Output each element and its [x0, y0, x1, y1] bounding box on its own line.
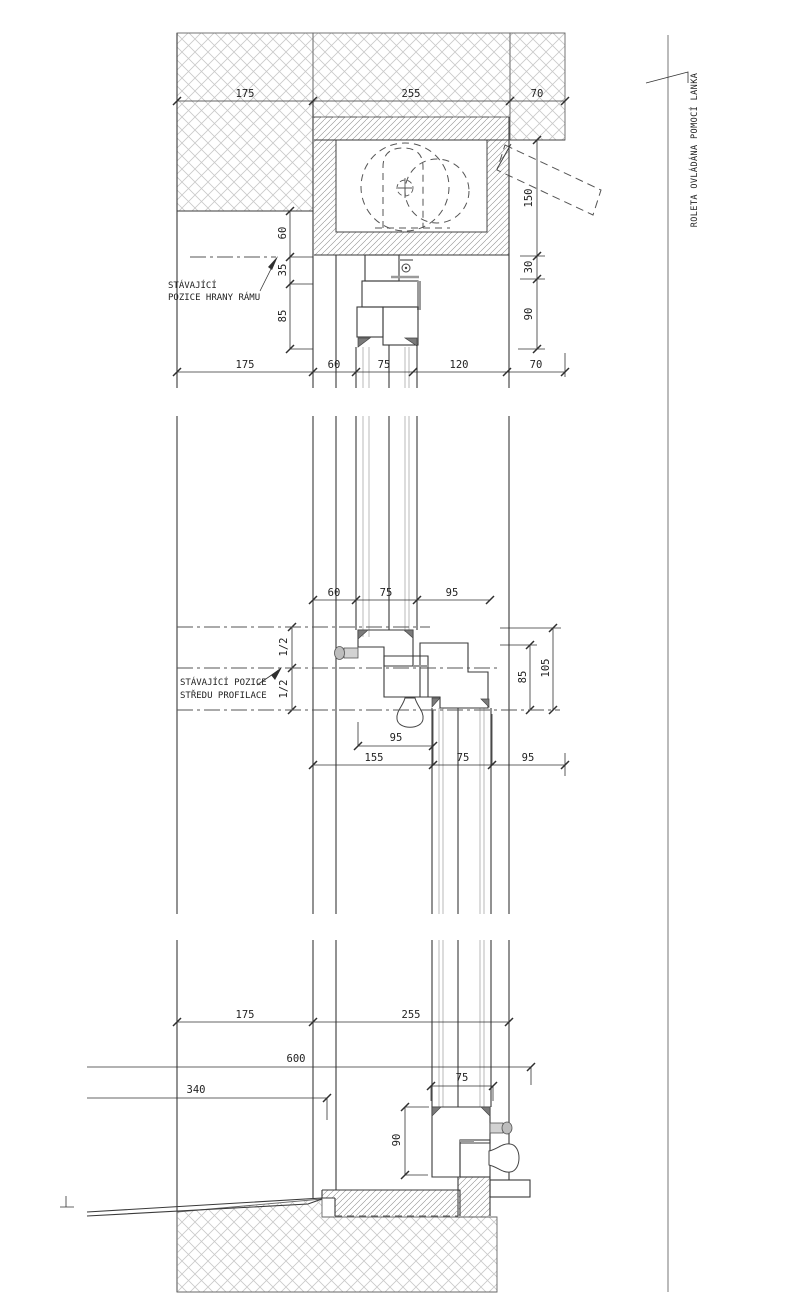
roller-flap-open: [497, 144, 601, 215]
dim-label: 35: [277, 264, 289, 277]
dim-label: 60: [277, 227, 289, 240]
window-detail-sheet: 175 255 70 175 60 75 120 70 60 35 85 150…: [0, 0, 800, 1303]
dim-label: 85: [277, 310, 289, 323]
dim-label: 70: [530, 359, 543, 371]
dim-label: 175: [236, 1009, 255, 1021]
cord-pulley-icon: [399, 260, 413, 272]
sill-profile: [60, 1107, 530, 1217]
transom-profile: [335, 630, 490, 727]
dim-label: 85: [517, 671, 529, 684]
espagnolette-knob-icon: [335, 647, 359, 660]
dim-label: 30: [523, 261, 535, 274]
dim-label: 120: [450, 359, 469, 371]
centerlines: [177, 257, 560, 710]
transom-note-line1: STÁVAJÍCÍ POZICE: [180, 676, 267, 688]
dim-label: 75: [378, 359, 391, 371]
dimension-lines: [87, 97, 569, 1179]
dim-label: 175: [236, 359, 255, 371]
dim-label: 255: [402, 88, 421, 100]
dim-label: 75: [380, 587, 393, 599]
dim-label: 75: [457, 752, 470, 764]
window-detail-drawing: 175 255 70 175 60 75 120 70 60 35 85 150…: [0, 0, 800, 1303]
espagnolette-knob-icon: [490, 1122, 512, 1134]
dim-label: 1/2: [278, 680, 290, 699]
dim-label: 95: [522, 752, 535, 764]
dim-label: 75: [456, 1072, 469, 1084]
transom-note-line2: STŘEDU PROFILACE: [180, 689, 267, 701]
dim-label: 95: [446, 587, 459, 599]
roleta-note: ROLETA OVLÁDÁNA POMOCÍ LANKA: [688, 73, 700, 228]
roller-blind-box: [314, 117, 509, 255]
dim-label: 70: [531, 88, 544, 100]
dim-label: 175: [236, 88, 255, 100]
dim-label: 150: [523, 189, 535, 208]
head-note-line1: STÁVAJÍCÍ: [168, 279, 217, 291]
section-reference-line: [646, 35, 688, 1292]
head-note-line2: POZICE HRANY RÁMU: [168, 291, 260, 303]
dim-label: 340: [187, 1084, 206, 1096]
dim-label: 255: [402, 1009, 421, 1021]
window-handle-icon: [397, 698, 423, 727]
window-handle-icon: [489, 1144, 519, 1172]
dim-label: 105: [540, 659, 552, 678]
dim-label: 90: [523, 308, 535, 321]
dim-label: 60: [328, 587, 341, 599]
dim-label: 95: [390, 732, 403, 744]
dim-label: 155: [365, 752, 384, 764]
dim-label: 90: [391, 1134, 403, 1147]
dim-label: 1/2: [278, 638, 290, 657]
head-frame-profile: [357, 255, 421, 347]
dim-label: 600: [287, 1053, 306, 1065]
dim-label: 60: [328, 359, 341, 371]
